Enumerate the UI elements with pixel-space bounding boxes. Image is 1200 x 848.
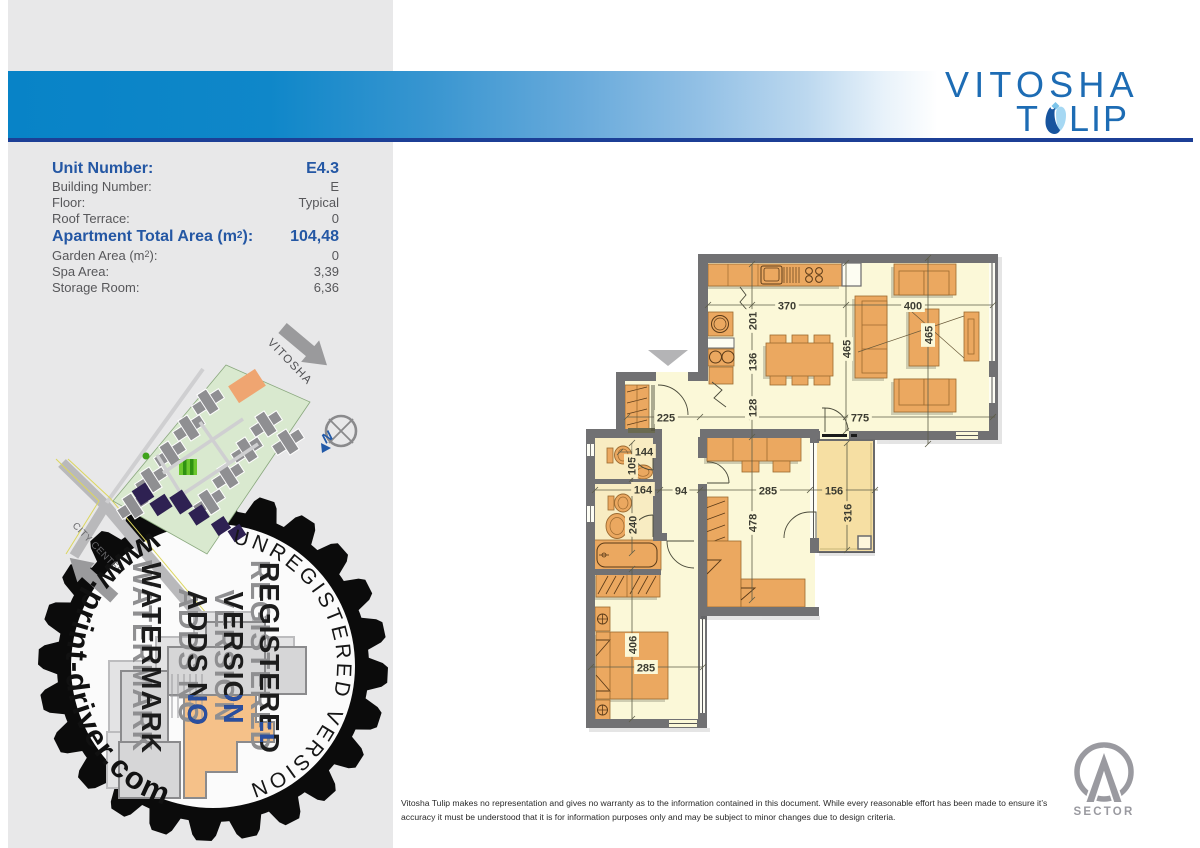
- svg-text:775: 775: [851, 413, 869, 425]
- svg-text:SECTOR: SECTOR: [1074, 806, 1135, 818]
- svg-text:370: 370: [778, 301, 796, 313]
- svg-text:400: 400: [904, 301, 922, 313]
- svg-text:105: 105: [627, 457, 639, 475]
- svg-text:WATERMARK: WATERMARK: [136, 562, 167, 754]
- svg-text:240: 240: [628, 516, 640, 534]
- svg-text:285: 285: [637, 663, 655, 675]
- svg-text:225: 225: [657, 413, 675, 425]
- svg-text:156: 156: [825, 486, 843, 498]
- svg-text:478: 478: [748, 514, 760, 532]
- svg-text:144: 144: [635, 447, 654, 459]
- svg-text:285: 285: [759, 486, 777, 498]
- svg-text:128: 128: [748, 399, 760, 417]
- svg-text:201: 201: [748, 312, 760, 330]
- svg-text:94: 94: [675, 486, 688, 498]
- svg-text:316: 316: [843, 504, 855, 522]
- svg-text:136: 136: [748, 353, 760, 371]
- svg-text:465: 465: [842, 340, 854, 358]
- svg-text:406: 406: [628, 636, 640, 654]
- svg-text:465: 465: [924, 326, 936, 344]
- svg-text:164: 164: [634, 485, 653, 497]
